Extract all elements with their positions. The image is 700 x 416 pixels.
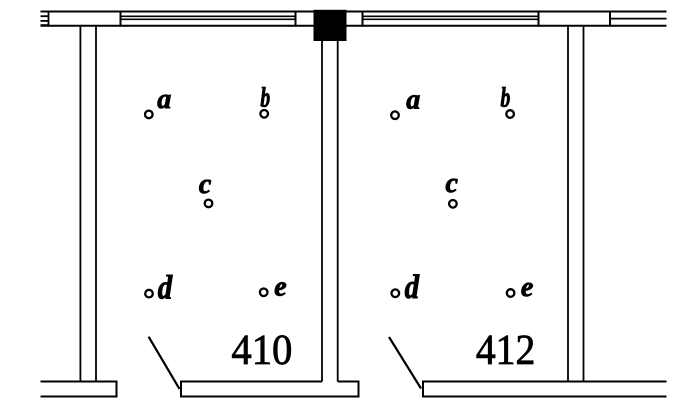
svg-text:e: e bbox=[521, 272, 533, 303]
svg-text:a: a bbox=[157, 84, 171, 115]
svg-text:d: d bbox=[158, 269, 173, 306]
svg-text:e: e bbox=[274, 272, 286, 303]
svg-text:a: a bbox=[406, 85, 420, 116]
svg-text:410: 410 bbox=[231, 327, 292, 374]
svg-text:d: d bbox=[405, 269, 420, 306]
svg-text:412: 412 bbox=[476, 327, 536, 374]
svg-text:b: b bbox=[501, 82, 511, 113]
svg-text:b: b bbox=[260, 82, 270, 113]
svg-text:c: c bbox=[199, 169, 212, 200]
svg-text:c: c bbox=[446, 168, 459, 199]
